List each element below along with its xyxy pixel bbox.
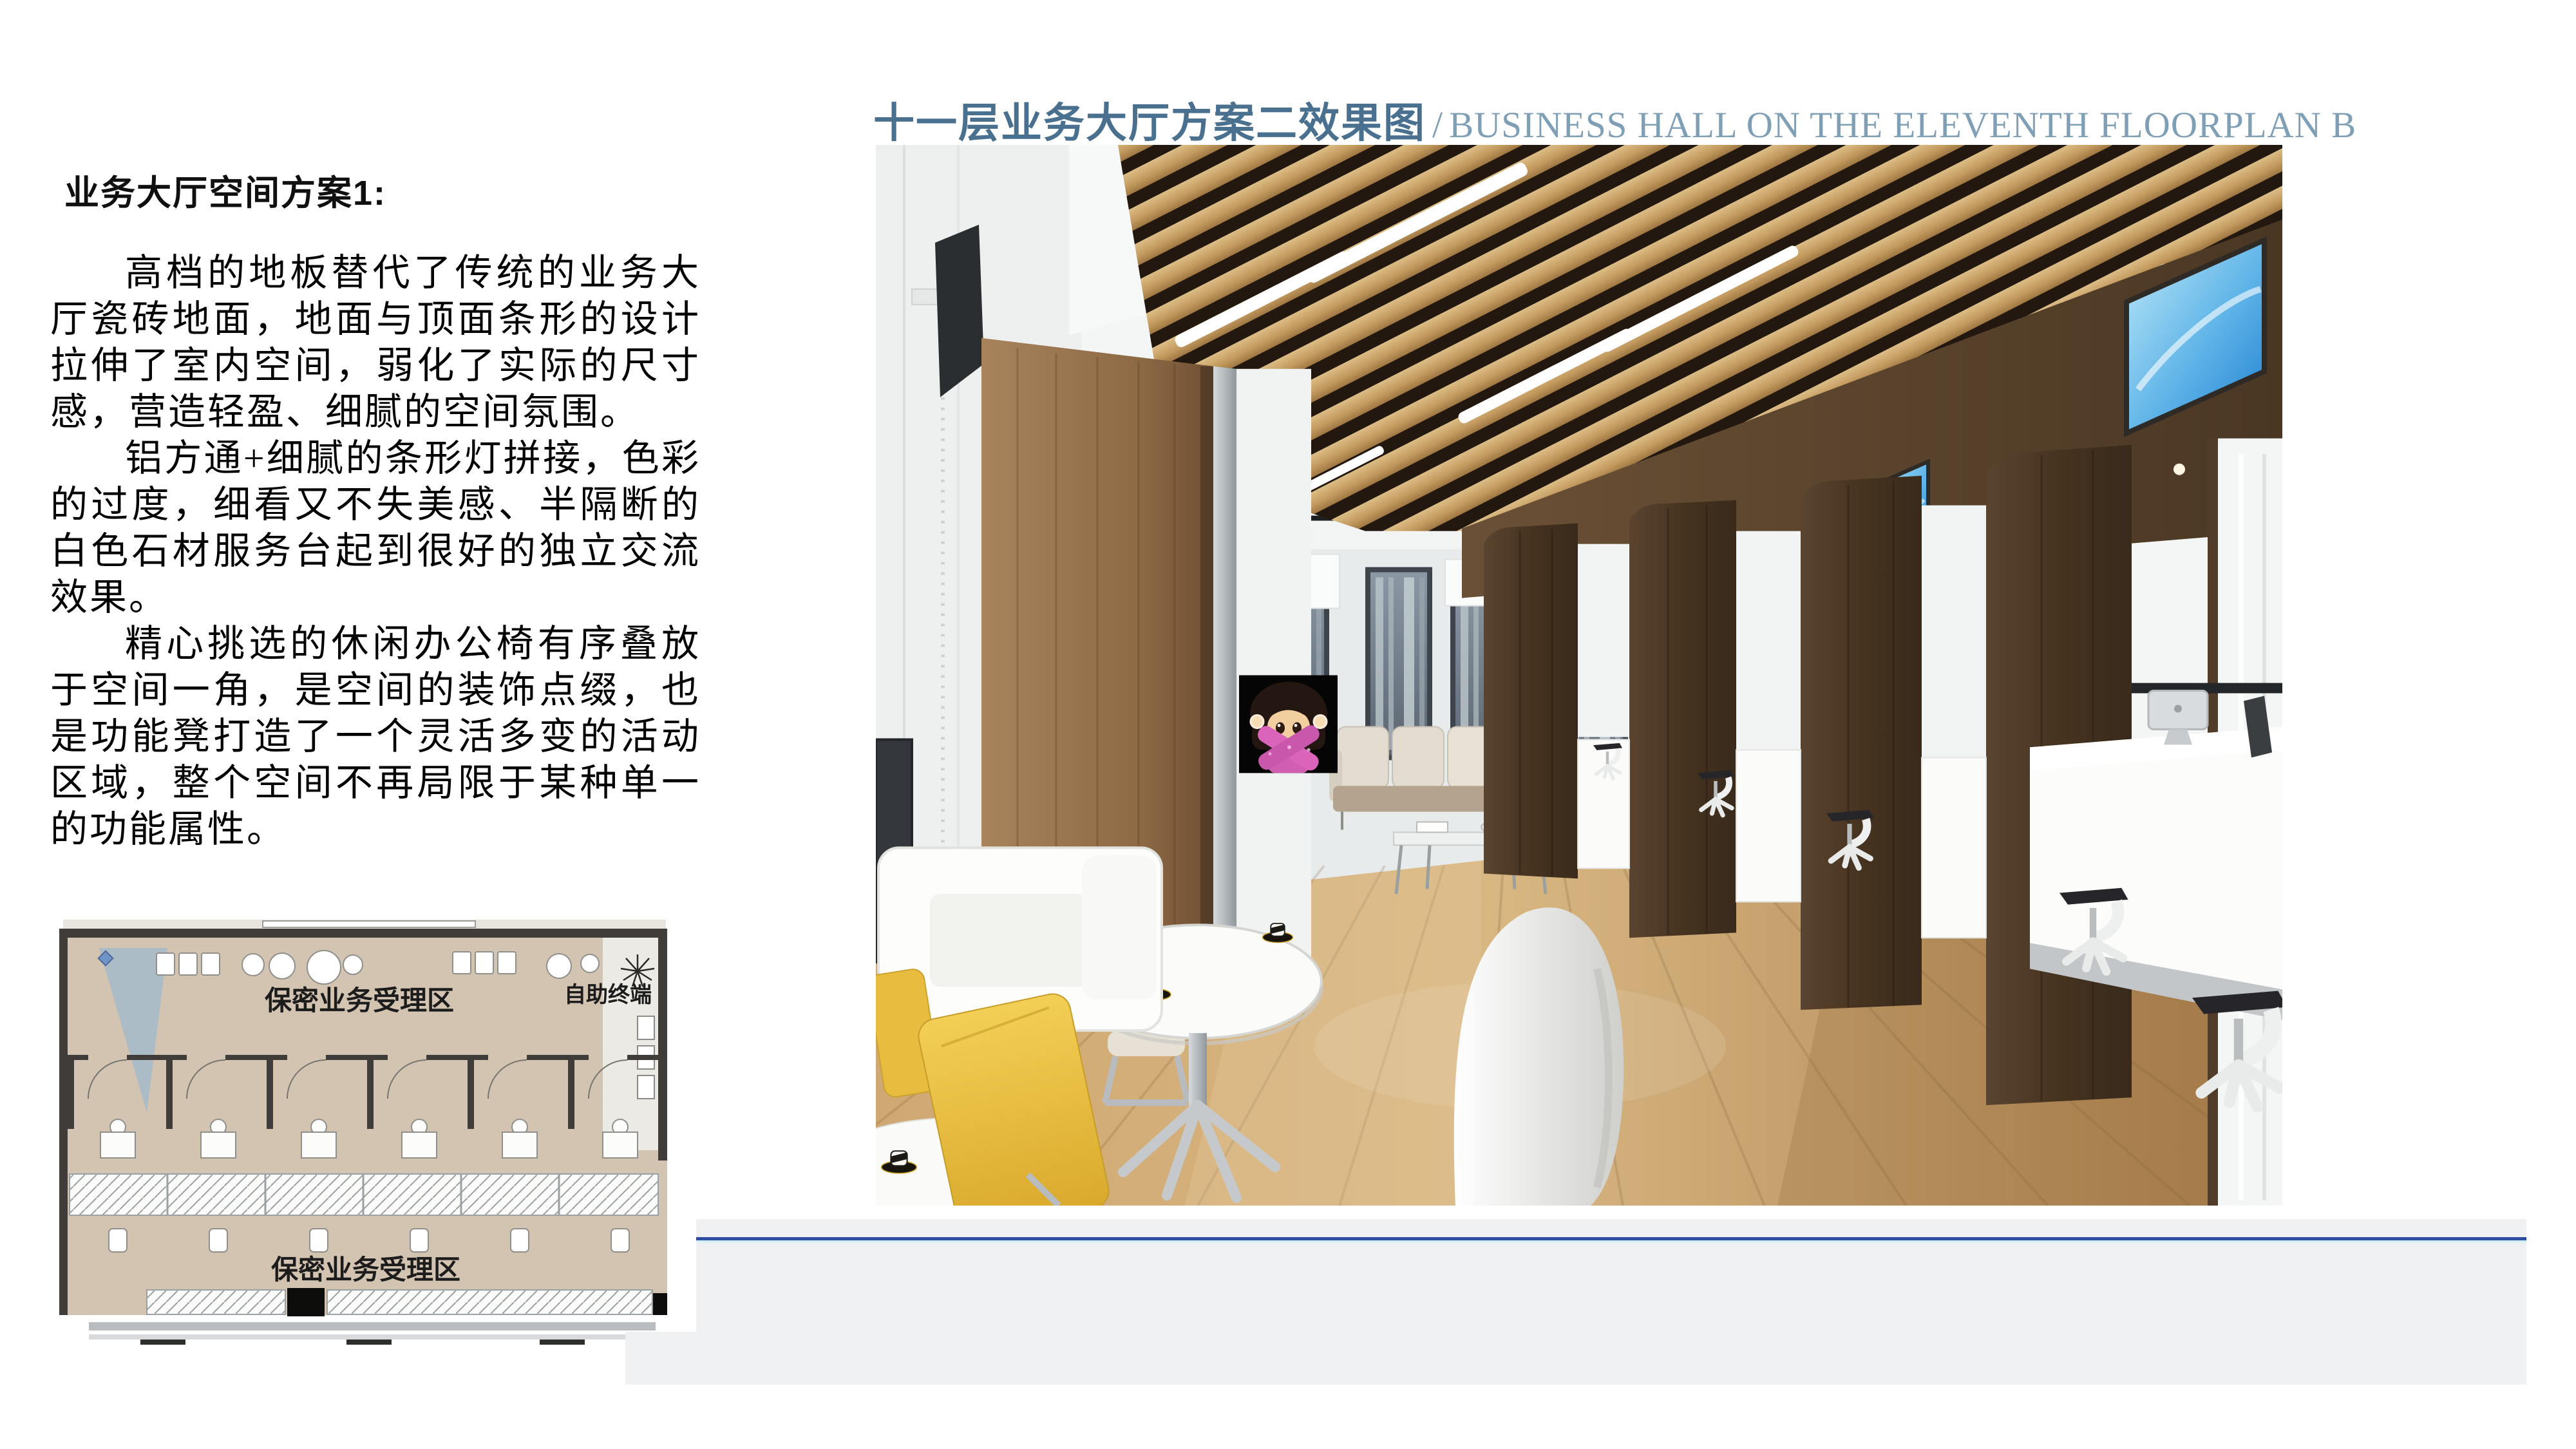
page-title: 十一层业务大厅方案二效果图 / BUSINESS HALL ON THE ELE… (873, 90, 2356, 149)
steel-panel (1213, 366, 1236, 969)
column-block (287, 1288, 325, 1316)
plan-label-top: 保密业务受理区 (265, 985, 454, 1016)
no-gesture-emoji (1239, 676, 1338, 773)
floor-plan: 保密业务受理区 自助终端 保密业务受理区 (50, 920, 703, 1345)
emoji-hand (1251, 715, 1264, 728)
interior-render-image (876, 145, 2282, 1206)
paragraph-3: 精心挑选的休闲办公椅有序叠放于空间一角，是空间的装饰点缀，也是功能凳打造了一个灵… (50, 621, 701, 853)
paragraph-1: 高档的地板替代了传统的业务大厅瓷砖地面，地面与顶面条形的设计拉伸了室内空间，弱化… (50, 250, 701, 435)
plan-label-terminal: 自助终端 (564, 983, 652, 1007)
description-text: 高档的地板替代了传统的业务大厅瓷砖地面，地面与顶面条形的设计拉伸了室内空间，弱化… (50, 250, 701, 853)
slide: 十一层业务大厅方案二效果图 / BUSINESS HALL ON THE ELE… (0, 0, 2576, 1449)
footer-divider-line (696, 1237, 2526, 1242)
white-pillar (1236, 369, 1311, 966)
curtain-wall (89, 1322, 656, 1331)
emoji-hand (1314, 715, 1327, 728)
column-block (653, 1293, 667, 1315)
title-chinese: 十一层业务大厅方案二效果图 (873, 90, 1426, 149)
section-heading: 业务大厅空间方案1: (64, 164, 386, 215)
title-separator: / (1432, 103, 1443, 146)
paragraph-2: 铝方通+细腻的条形灯拼接，色彩的过度，细看又不失美感、半隔断的白色石材服务台起到… (50, 435, 701, 621)
title-english: BUSINESS HALL ON THE ELEVENTH FLOORPLAN … (1449, 104, 2356, 146)
plan-label-bottom: 保密业务受理区 (271, 1255, 460, 1285)
footer-band-lower (625, 1332, 2526, 1385)
footer-band (696, 1219, 2526, 1332)
